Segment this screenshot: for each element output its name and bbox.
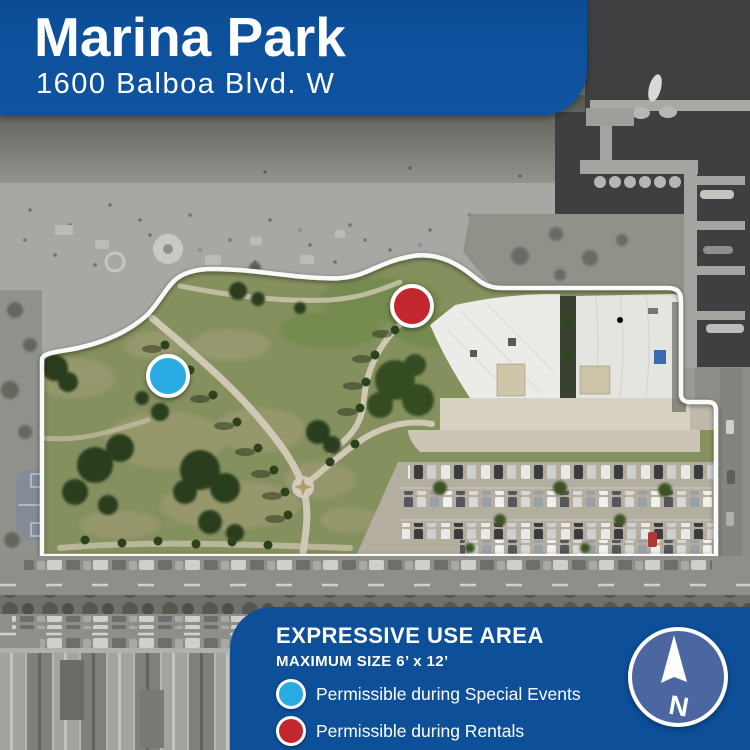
rentals-marker <box>390 284 434 328</box>
red-dot-icon <box>276 716 306 746</box>
address: 1600 Balboa Blvd. W <box>36 68 587 101</box>
title-banner: Marina Park 1600 Balboa Blvd. W <box>0 0 587 116</box>
page-title: Marina Park <box>34 9 587 67</box>
flyer: Marina Park 1600 Balboa Blvd. W EXPRESSI… <box>0 0 750 750</box>
legend-item-label: Permissible during Special Events <box>316 684 581 705</box>
blue-dot-icon <box>276 679 306 709</box>
north-compass: N <box>628 627 728 727</box>
community-center-building <box>430 294 718 438</box>
legend-item-label: Permissible during Rentals <box>316 721 524 742</box>
north-arrow-icon: N <box>628 627 728 727</box>
special-events-marker <box>146 354 190 398</box>
compass-n-label: N <box>667 690 691 723</box>
